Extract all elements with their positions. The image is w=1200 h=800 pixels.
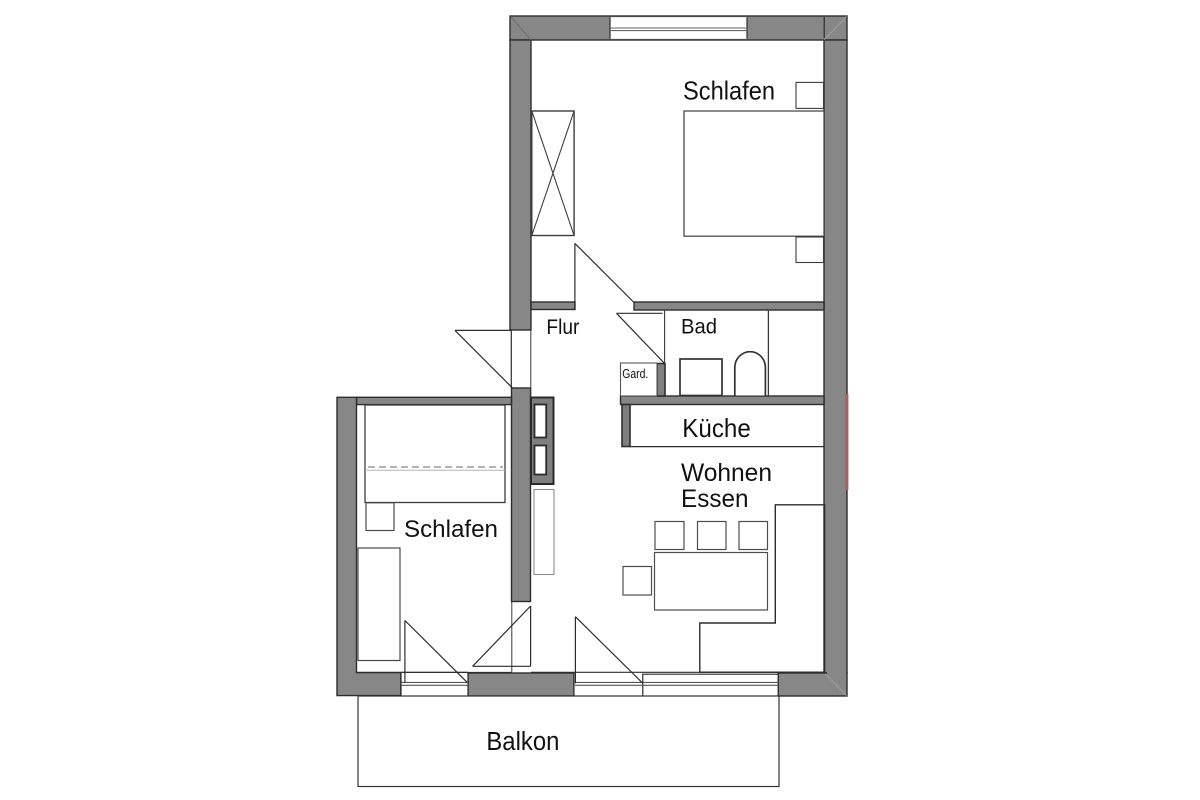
svg-text:Wohnen: Wohnen (681, 459, 772, 487)
svg-text:Bad: Bad (681, 314, 717, 338)
svg-text:Balkon: Balkon (486, 728, 559, 756)
svg-text:Schlafen: Schlafen (404, 516, 498, 543)
svg-text:Gard.: Gard. (622, 366, 648, 381)
svg-text:Küche: Küche (682, 413, 751, 443)
svg-text:Essen: Essen (681, 485, 749, 513)
svg-text:Schlafen: Schlafen (683, 76, 775, 106)
svg-text:Flur: Flur (546, 315, 579, 339)
